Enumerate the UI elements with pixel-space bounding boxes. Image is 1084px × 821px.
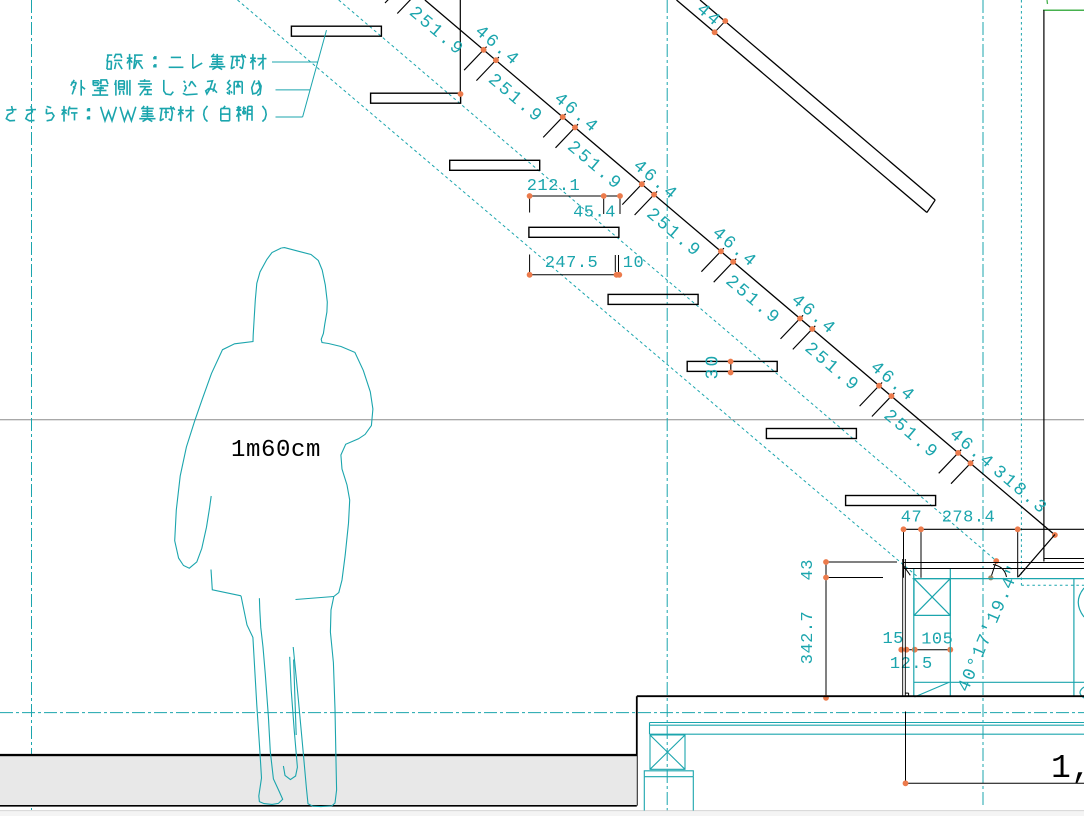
svg-text:15: 15 (882, 630, 903, 649)
svg-text:342.7: 342.7 (799, 611, 818, 665)
svg-text:12.5: 12.5 (890, 655, 933, 674)
svg-text:1,: 1, (1051, 750, 1084, 787)
svg-text:43: 43 (799, 559, 818, 580)
svg-text:278.4: 278.4 (942, 509, 996, 528)
svg-text:1m60cm: 1m60cm (231, 437, 321, 464)
svg-text:247.5: 247.5 (545, 254, 599, 273)
svg-text:45.4: 45.4 (573, 204, 616, 223)
svg-text:105: 105 (921, 631, 953, 650)
svg-text:212.1: 212.1 (527, 177, 581, 196)
svg-text:47: 47 (901, 509, 922, 528)
svg-text:30: 30 (704, 353, 724, 379)
svg-text:10: 10 (623, 254, 644, 273)
